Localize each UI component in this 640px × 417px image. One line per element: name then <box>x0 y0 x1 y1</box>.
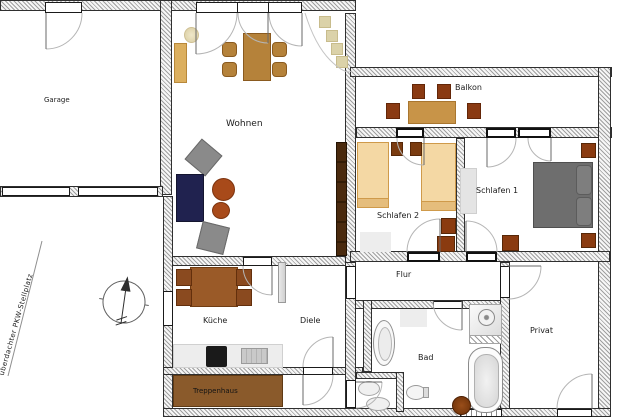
room-label-diele: Diele <box>300 317 320 325</box>
flur-bad-door <box>433 301 463 309</box>
stove <box>206 346 227 367</box>
wc-sink <box>358 381 380 396</box>
schlafen1-window <box>518 128 551 138</box>
room-label-garage: Garage <box>44 97 70 104</box>
annotation-parking: überdachter PKW-Stellplatz <box>0 273 35 377</box>
balcony-chair <box>412 84 425 99</box>
door-swing <box>269 13 302 46</box>
bathtub <box>468 347 503 413</box>
garage-top-door <box>45 2 82 13</box>
room-label-treppenhaus: Treppenhaus <box>193 388 238 395</box>
room-label-bad: Bad <box>418 354 433 362</box>
wall-bottom <box>163 408 611 417</box>
kitchen-chair <box>236 269 252 286</box>
shower-drain-strip <box>470 335 501 343</box>
room-label-schlafen2: Schlafen 2 <box>377 212 419 220</box>
wohnen-top-door-3 <box>268 2 302 13</box>
stair-step <box>336 56 348 68</box>
balkon-door-schlafen2 <box>396 128 424 138</box>
wall-kueche-bottom <box>163 367 363 375</box>
single-bed <box>421 143 456 211</box>
wc-door-opening <box>346 380 356 408</box>
dining-table <box>243 33 271 81</box>
balkon-door-schlafen1 <box>486 128 516 138</box>
sink <box>241 348 268 364</box>
wc-toilet <box>366 397 390 411</box>
washbasin <box>373 320 395 366</box>
dining-chair <box>272 42 287 57</box>
balcony-chair <box>467 103 481 119</box>
round-chair <box>212 202 230 219</box>
sofa <box>176 174 204 222</box>
wall-east <box>598 67 611 417</box>
door-swing <box>508 266 541 299</box>
north-arrow-icon <box>96 273 152 329</box>
garage-bottom-window-2 <box>78 187 158 196</box>
diele-bottom-door <box>303 367 333 375</box>
room-label-flur: Flur <box>396 271 411 279</box>
round-chair <box>212 178 235 201</box>
dining-chair <box>222 62 237 77</box>
dresser <box>437 236 455 252</box>
door-swing <box>487 138 516 167</box>
wohnen-kueche-door <box>243 257 272 266</box>
kitchen-table <box>190 267 238 307</box>
plant <box>184 27 199 43</box>
wall-garage-right <box>160 0 172 195</box>
nightstand <box>410 142 422 156</box>
wall-kueche-diele <box>278 262 286 303</box>
kitchen-chair <box>236 289 252 306</box>
balcony-chair <box>386 103 400 119</box>
shower-head-icon <box>478 309 495 326</box>
diele-flur-opening <box>346 266 356 299</box>
door-swing <box>466 221 497 252</box>
shower <box>469 304 502 344</box>
room-label-kueche: Küche <box>203 317 227 325</box>
stair-step <box>331 43 343 55</box>
parking-boundary-line <box>8 241 42 376</box>
nightstand <box>391 142 403 156</box>
wall-wc-right <box>396 372 404 412</box>
door-swing <box>557 374 592 409</box>
kitchen-chair <box>176 269 192 286</box>
stair-step <box>319 16 331 28</box>
bathtub-basin <box>474 354 499 408</box>
kueche-west-window <box>163 291 173 326</box>
dresser <box>441 218 456 234</box>
room-label-privat: Privat <box>530 327 553 335</box>
door-swing <box>303 375 333 405</box>
door-swing <box>303 337 333 367</box>
kitchen-chair <box>176 289 192 306</box>
washbasin-bowl <box>378 327 392 361</box>
floor-plan-canvas: Garage Wohnen Balkon Schlafen 2 Schlafen… <box>0 0 640 417</box>
pillow <box>576 165 592 195</box>
room-label-wohnen: Wohnen <box>226 120 263 129</box>
pillow <box>576 197 592 226</box>
wohnen-top-door-2 <box>237 2 269 13</box>
door-swing <box>407 219 440 252</box>
wohnen-top-door-1 <box>196 2 238 13</box>
nightstand <box>581 143 596 158</box>
sideboard <box>174 43 187 83</box>
plant-pot <box>452 396 471 415</box>
rug <box>360 232 391 252</box>
wall-balkon-bottom <box>356 127 612 138</box>
armchair <box>184 138 222 176</box>
door-swing <box>528 138 551 161</box>
bench <box>502 235 519 251</box>
bed-footboard <box>422 201 455 210</box>
flur-privat-door <box>500 266 510 298</box>
room-label-schlafen1: Schlafen 1 <box>476 187 518 195</box>
nightstand <box>581 233 596 248</box>
tall-wardrobe <box>336 142 347 256</box>
garage-bottom-window-1 <box>2 187 70 196</box>
door-swing <box>46 13 82 49</box>
bath-shelf <box>400 309 427 327</box>
armchair <box>196 221 230 255</box>
dining-chair <box>272 62 287 77</box>
room-label-balkon: Balkon <box>455 84 482 92</box>
wall-bad-left <box>363 300 372 372</box>
single-bed <box>357 142 389 208</box>
balcony-chair <box>437 84 451 99</box>
dining-chair <box>222 42 237 57</box>
schlafen2-flur-door <box>407 252 440 262</box>
balcony-table <box>408 101 456 124</box>
wardrobe <box>460 168 477 214</box>
wall-balkon-top <box>350 67 612 77</box>
toilet-tank <box>423 387 429 398</box>
bed-footboard <box>358 198 388 207</box>
privat-bottom-door <box>557 409 592 417</box>
stair-step <box>326 30 338 42</box>
schlafen1-flur-door <box>466 252 497 262</box>
